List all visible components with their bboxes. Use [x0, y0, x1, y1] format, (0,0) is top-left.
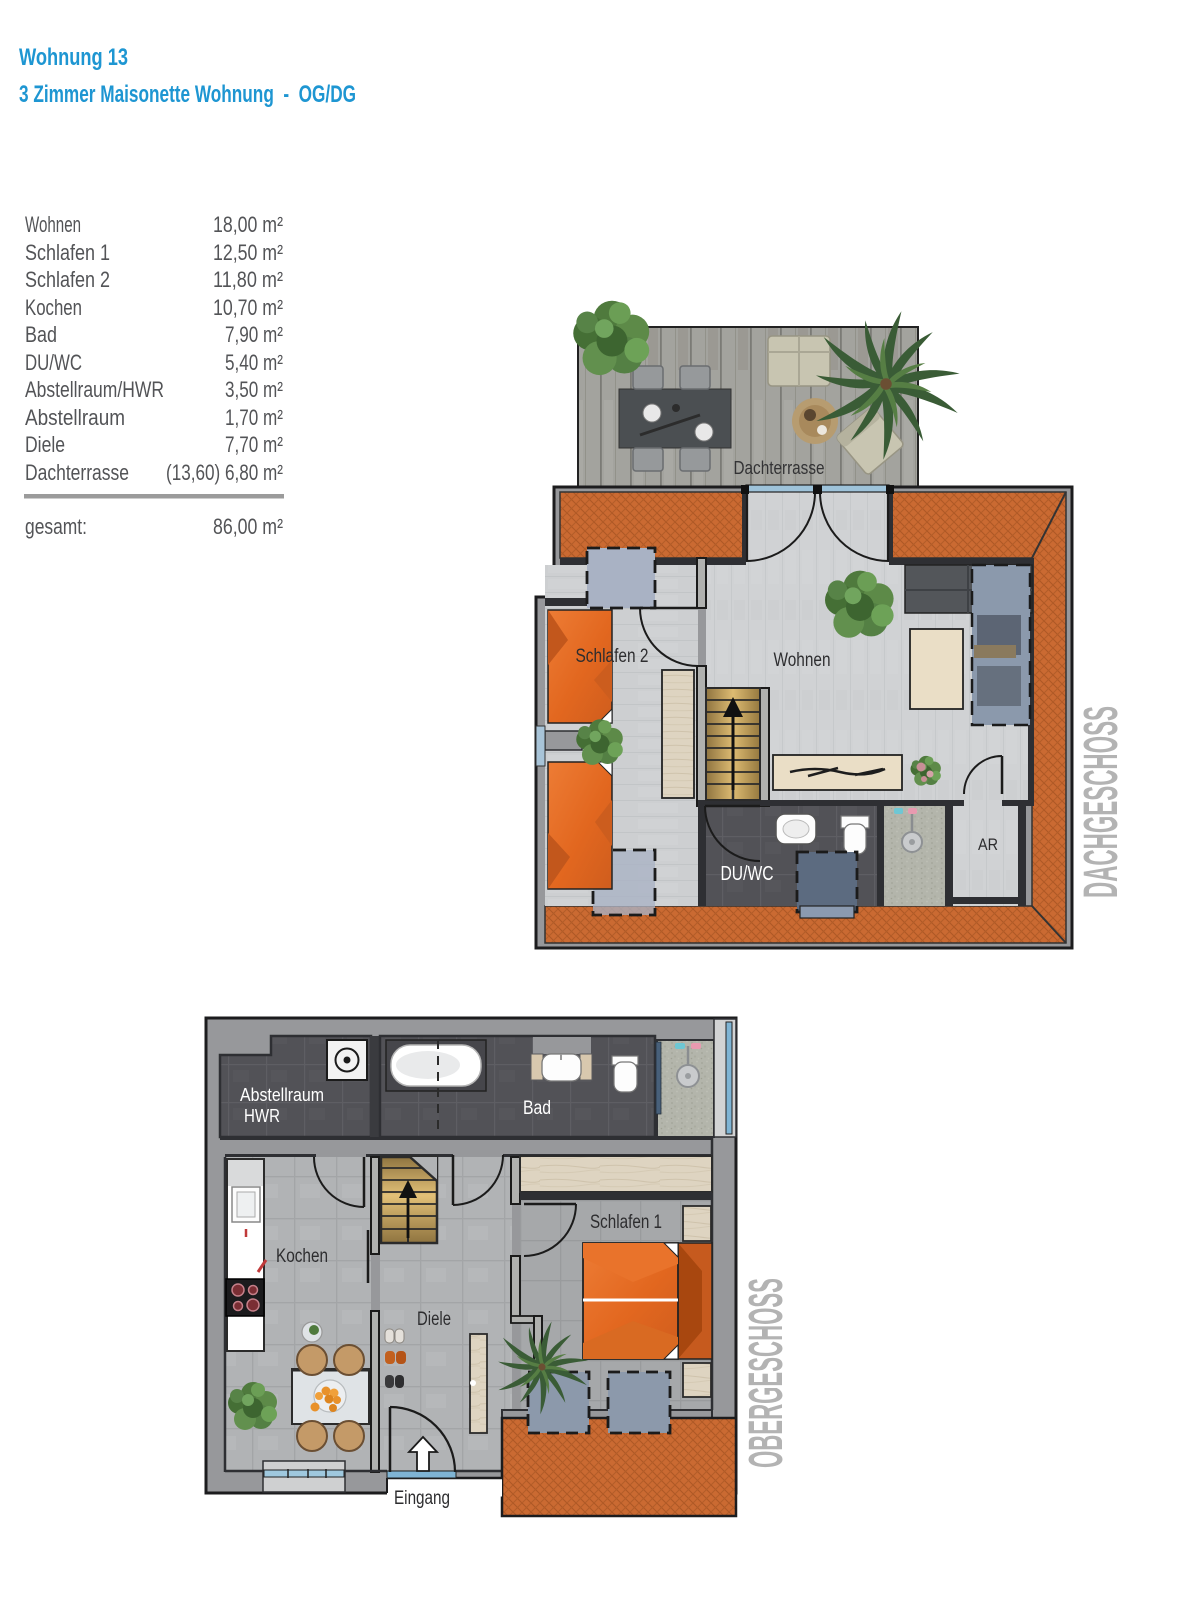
svg-text:OBERGESCHOSS: OBERGESCHOSS	[740, 1278, 793, 1468]
svg-text:Bad: Bad	[523, 1098, 551, 1119]
svg-text:(13,60) 6,80 m²: (13,60) 6,80 m²	[166, 460, 283, 485]
svg-text:HWR: HWR	[244, 1106, 280, 1126]
svg-text:Wohnen: Wohnen	[774, 649, 831, 671]
svg-text:Schlafen 1: Schlafen 1	[25, 240, 110, 265]
svg-text:Schlafen 1: Schlafen 1	[590, 1211, 662, 1233]
svg-text:Abstellraum: Abstellraum	[25, 405, 125, 430]
svg-text:Wohnen: Wohnen	[25, 212, 81, 237]
svg-text:Diele: Diele	[25, 432, 65, 457]
svg-text:11,80 m²: 11,80 m²	[213, 267, 283, 292]
svg-text:AR: AR	[978, 835, 998, 854]
svg-text:7,90 m²: 7,90 m²	[225, 322, 283, 347]
svg-text:1,70 m²: 1,70 m²	[225, 405, 283, 430]
svg-text:DU/WC: DU/WC	[25, 350, 82, 375]
svg-text:DACHGESCHOSS: DACHGESCHOSS	[1075, 706, 1128, 898]
svg-text:Abstellraum/HWR: Abstellraum/HWR	[25, 377, 164, 402]
svg-text:3,50 m²: 3,50 m²	[225, 377, 283, 402]
svg-text:Kochen: Kochen	[25, 295, 82, 320]
svg-text:86,00 m²: 86,00 m²	[213, 514, 283, 539]
svg-text:DU/WC: DU/WC	[721, 863, 774, 885]
svg-text:Schlafen 2: Schlafen 2	[576, 645, 649, 667]
svg-text:Dachterrasse: Dachterrasse	[734, 458, 825, 478]
svg-text:gesamt:: gesamt:	[25, 514, 87, 539]
svg-text:Bad: Bad	[25, 322, 57, 347]
svg-text:18,00 m²: 18,00 m²	[213, 212, 283, 237]
svg-text:7,70 m²: 7,70 m²	[225, 432, 283, 457]
svg-text:Eingang: Eingang	[394, 1488, 450, 1509]
svg-text:5,40 m²: 5,40 m²	[225, 350, 283, 375]
svg-text:Wohnung 13: Wohnung 13	[19, 44, 128, 71]
svg-text:10,70 m²: 10,70 m²	[213, 295, 283, 320]
svg-text:Diele: Diele	[417, 1308, 451, 1330]
svg-text:Dachterrasse: Dachterrasse	[25, 460, 129, 485]
svg-text:3 Zimmer Maisonette Wohnung -: 3 Zimmer Maisonette Wohnung - OG/DG	[19, 81, 356, 108]
svg-text:Abstellraum: Abstellraum	[240, 1085, 324, 1105]
svg-text:Schlafen 2: Schlafen 2	[25, 267, 110, 292]
svg-text:Kochen: Kochen	[276, 1245, 328, 1267]
svg-text:12,50 m²: 12,50 m²	[213, 240, 283, 265]
